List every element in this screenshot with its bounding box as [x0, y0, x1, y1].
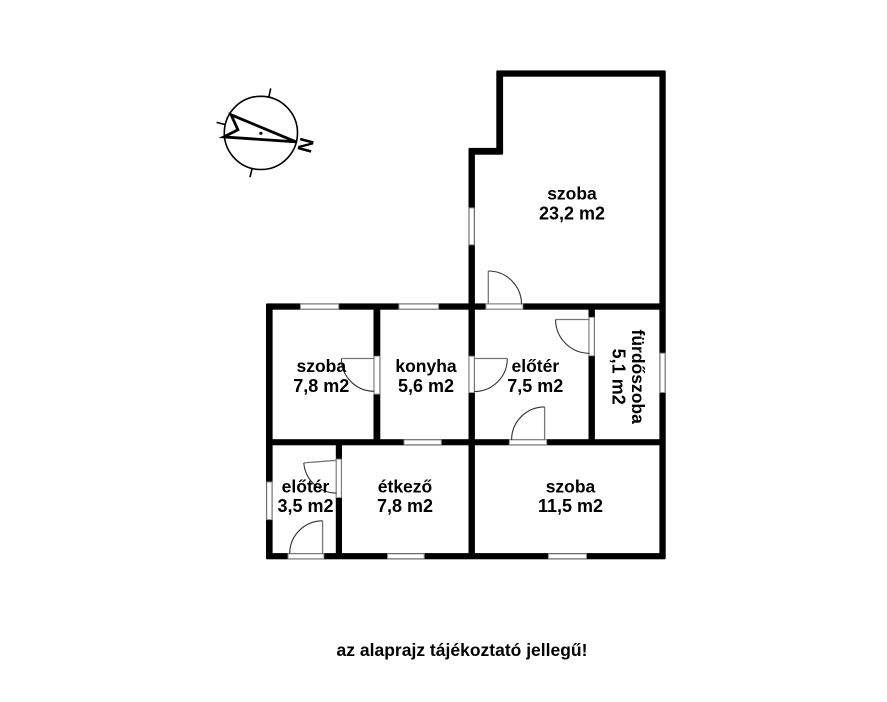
- svg-text:7,8 m2: 7,8 m2: [293, 376, 349, 396]
- svg-text:3,5 m2: 3,5 m2: [277, 496, 333, 516]
- svg-text:étkező: étkező: [378, 476, 432, 496]
- svg-text:konyha: konyha: [395, 356, 457, 376]
- svg-text:fürdőszoba: fürdőszoba: [628, 330, 648, 425]
- svg-text:7,8 m2: 7,8 m2: [377, 496, 433, 516]
- svg-text:az alaprajz tájékoztató jelleg: az alaprajz tájékoztató jellegű!: [337, 640, 588, 660]
- svg-text:szoba: szoba: [296, 356, 346, 376]
- svg-text:5,6 m2: 5,6 m2: [398, 376, 454, 396]
- svg-text:szoba: szoba: [546, 476, 596, 496]
- svg-text:előtér: előtér: [282, 476, 330, 496]
- svg-text:11,5 m2: 11,5 m2: [538, 496, 603, 516]
- svg-text:5,1 m2: 5,1 m2: [608, 349, 628, 405]
- svg-text:N: N: [292, 135, 317, 155]
- svg-text:előtér: előtér: [511, 356, 559, 376]
- svg-text:7,5 m2: 7,5 m2: [507, 376, 563, 396]
- svg-text:23,2 m2: 23,2 m2: [539, 204, 605, 224]
- svg-text:szoba: szoba: [547, 184, 597, 204]
